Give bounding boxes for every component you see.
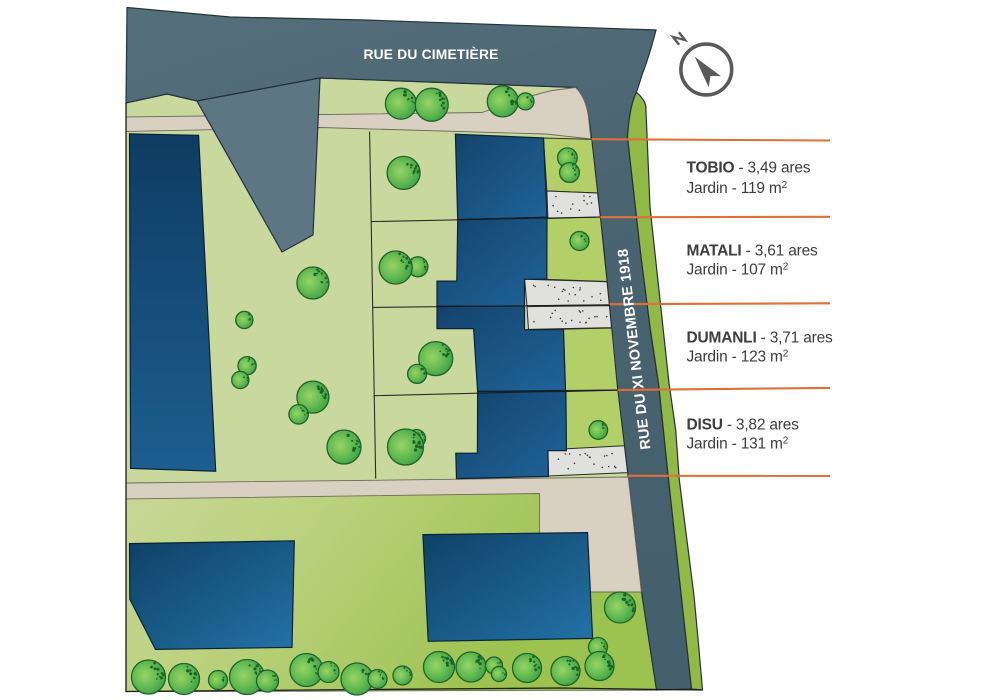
svg-text:RUE DU CIMETIÈRE: RUE DU CIMETIÈRE <box>363 46 498 62</box>
svg-text:MATALI - 3,61 ares: MATALI - 3,61 ares <box>687 243 818 260</box>
svg-text:Jardin - 123 m2: Jardin - 123 m2 <box>687 349 789 366</box>
svg-text:Jardin - 131 m2: Jardin - 131 m2 <box>687 436 789 453</box>
svg-text:Jardin - 119 m2: Jardin - 119 m2 <box>687 180 788 197</box>
svg-text:TOBIO - 3,49 ares: TOBIO - 3,49 ares <box>687 159 811 176</box>
svg-text:Jardin - 107 m2: Jardin - 107 m2 <box>687 262 789 279</box>
svg-text:DUMANLI - 3,71 ares: DUMANLI - 3,71 ares <box>687 330 834 347</box>
svg-text:DISU - 3,82 ares: DISU - 3,82 ares <box>687 417 800 434</box>
